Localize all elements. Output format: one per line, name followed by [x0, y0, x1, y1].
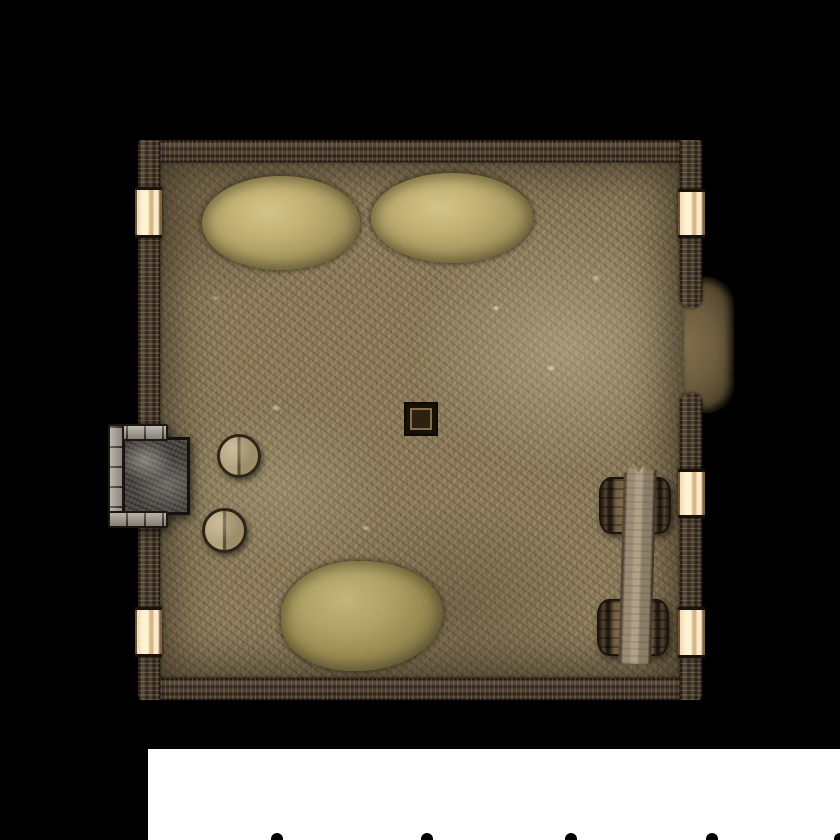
wall-bottom: [138, 678, 702, 700]
hay-pile-top-right: [371, 173, 533, 263]
fireplace[interactable]: [108, 424, 192, 528]
battlemap-stage: [0, 0, 840, 840]
wall-top: [138, 140, 702, 162]
window-right-bottom: [678, 607, 705, 658]
stool-upper[interactable]: [217, 434, 261, 478]
window-left-top: [135, 187, 162, 238]
page-strip: [148, 749, 840, 840]
cropped-glyph-top: [565, 833, 577, 840]
fireplace-stone-bottom: [108, 511, 168, 528]
cropped-glyph-top: [271, 833, 283, 840]
cropped-glyph-top: [706, 833, 718, 840]
cropped-glyph-top: [421, 833, 433, 840]
stool-lower[interactable]: [202, 508, 247, 553]
window-left-bottom: [135, 607, 162, 657]
hay-pile-top-left: [202, 176, 360, 270]
fireplace-hearth: [122, 437, 190, 515]
cropped-glyph-top: [834, 833, 840, 840]
floor-hatch[interactable]: [404, 402, 438, 436]
wooden-plank[interactable]: [618, 463, 657, 665]
window-right-top: [678, 189, 705, 238]
window-right-middle: [678, 469, 705, 518]
